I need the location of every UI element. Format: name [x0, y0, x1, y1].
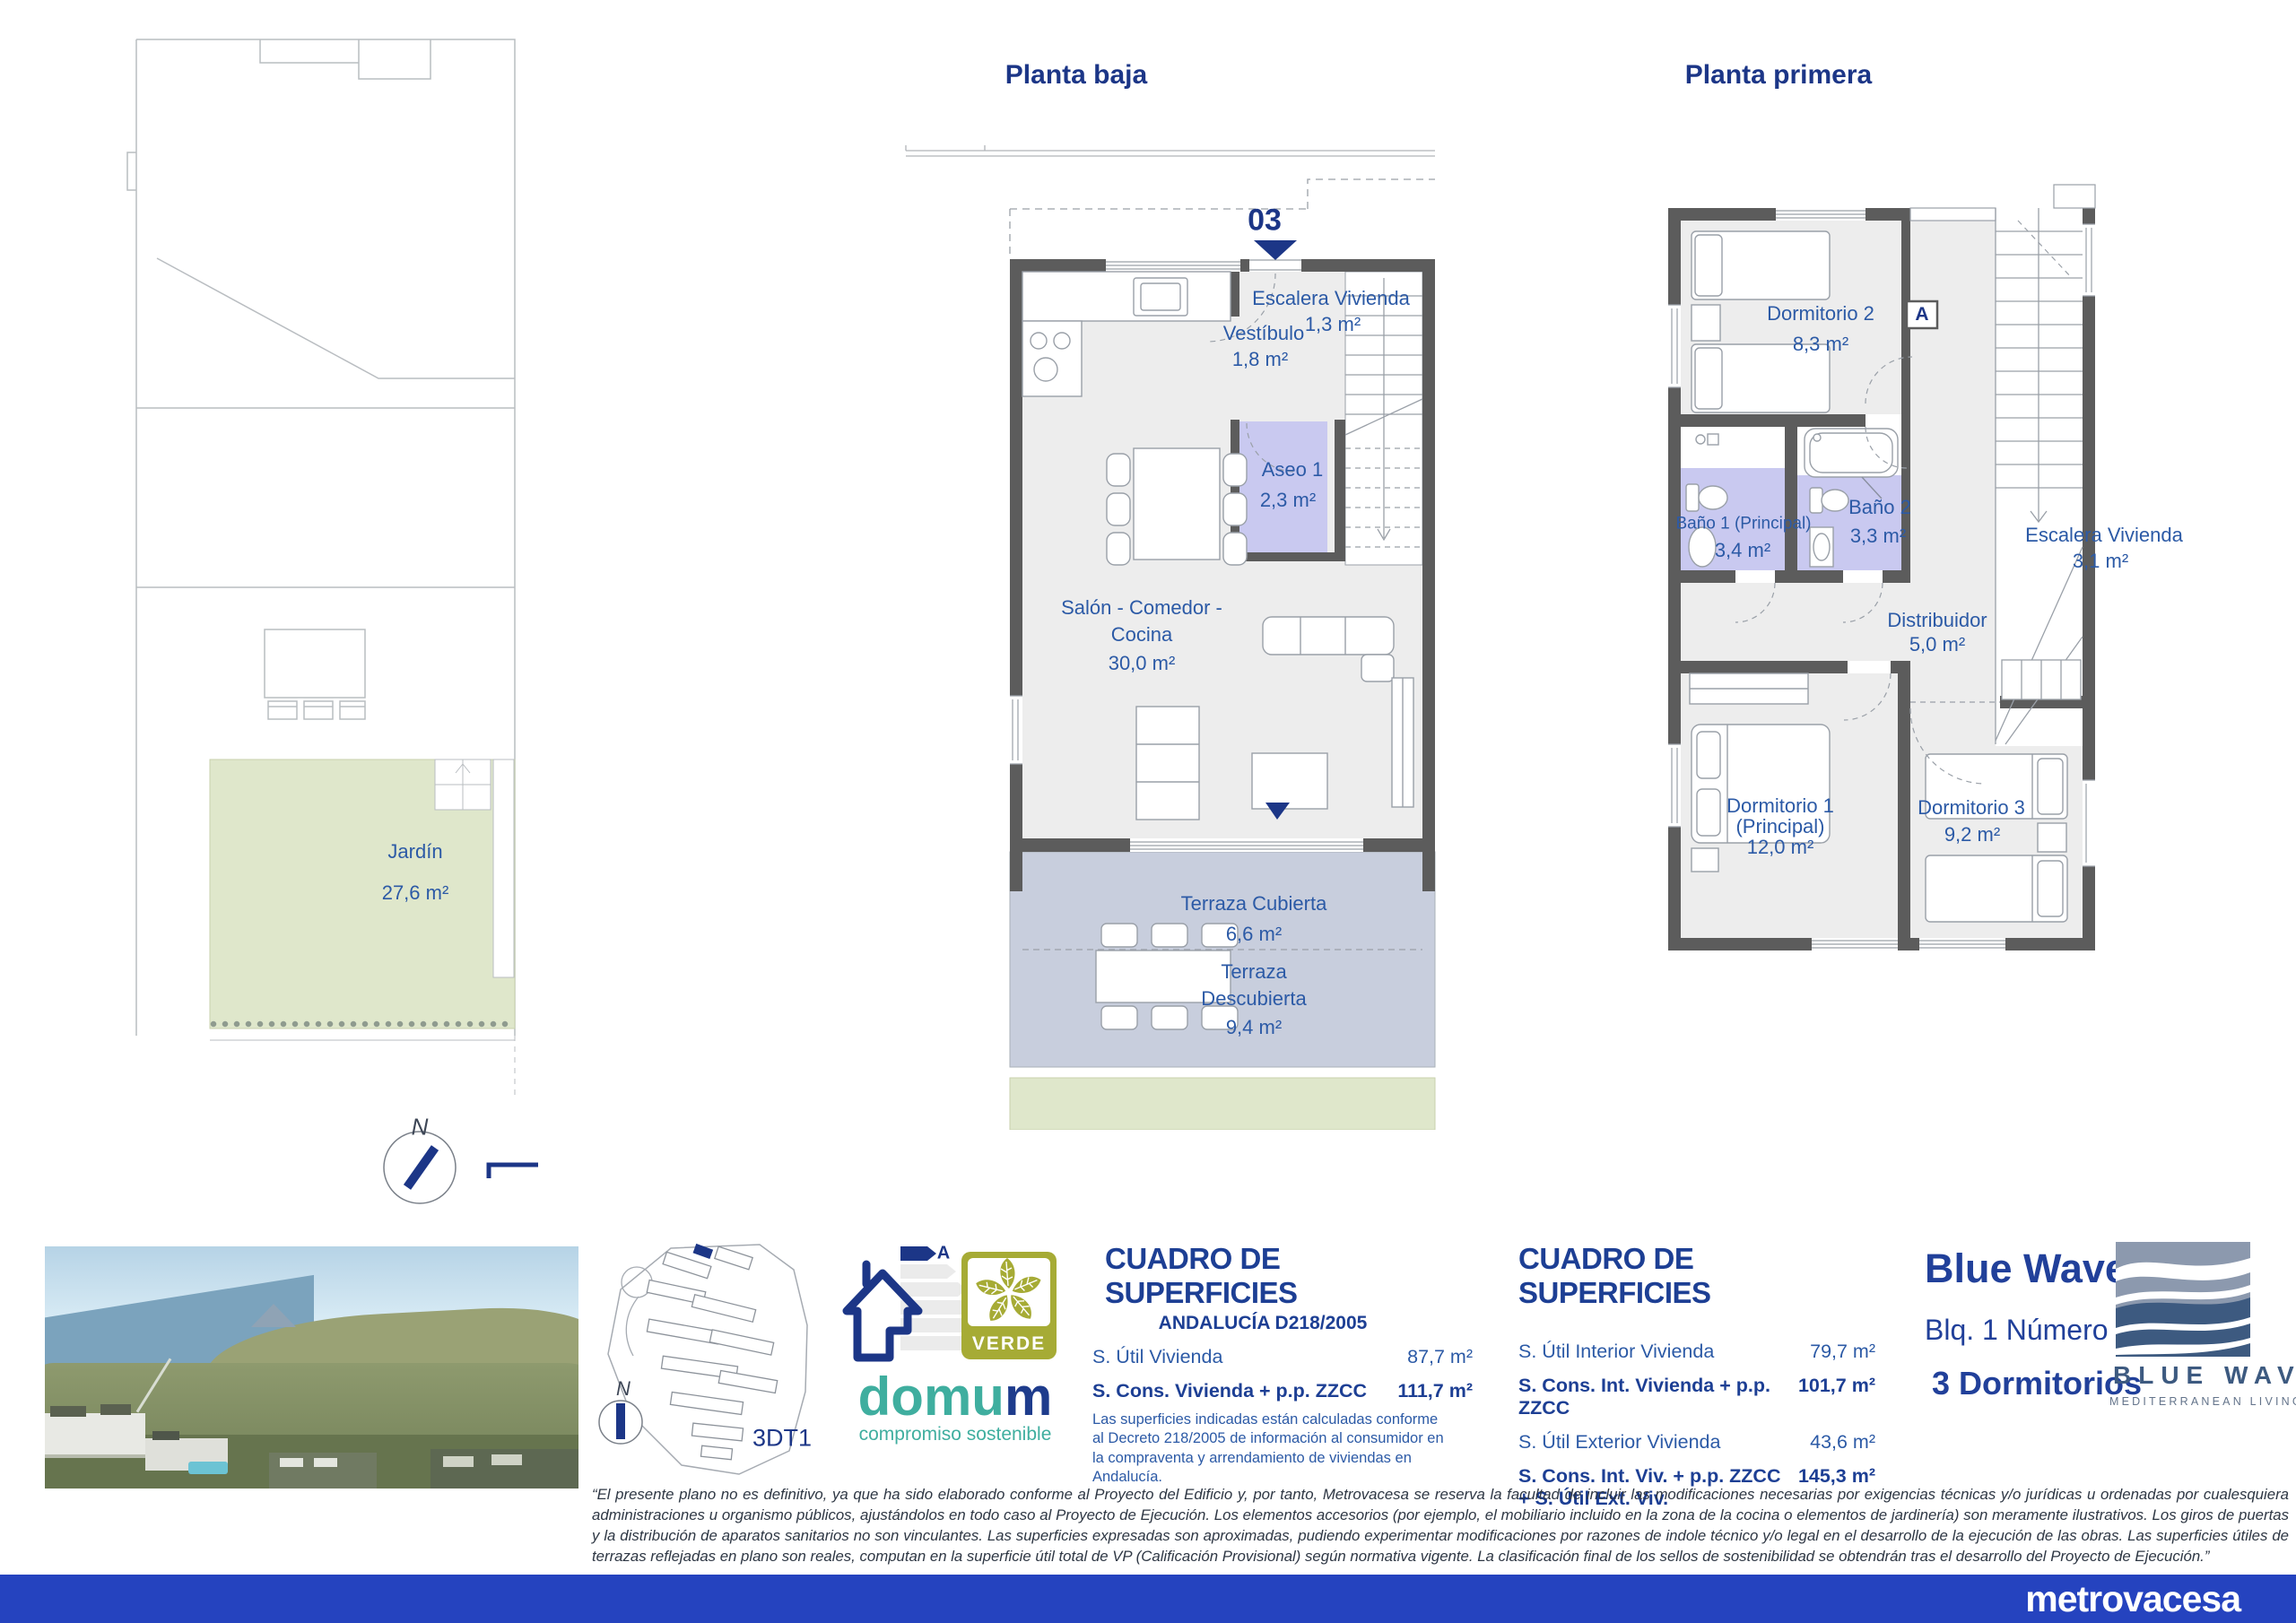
table2-title: CUADRO DE SUPERFICIES [1518, 1242, 1875, 1310]
table1-subtitle: ANDALUCÍA D218/2005 [1092, 1313, 1433, 1334]
row-label: S. Cons. Vivienda + p.p. ZZCC [1092, 1380, 1367, 1402]
row-value: 111,7 m² [1397, 1380, 1473, 1402]
row-label: S. Útil Vivienda [1092, 1346, 1222, 1368]
bano1-label: Baño 1 (Principal) [1675, 516, 1811, 533]
map-north-label: N [616, 1377, 631, 1401]
verde-leaf-icon [968, 1258, 1050, 1326]
dormitorio2-label: Dormitorio 2 [1767, 304, 1874, 324]
garden-label: Jardín [387, 842, 442, 862]
dormitorio3-label: Dormitorio 3 [1918, 798, 2025, 818]
domum-text-navy: m [1004, 1367, 1052, 1427]
garden-strip [1010, 1078, 1435, 1130]
dormitorio3-area: 9,2 m² [1944, 825, 2000, 845]
row-value: 79,7 m² [1810, 1341, 1875, 1363]
dormitorio1-area: 12,0 m² [1747, 838, 1814, 857]
north-label: N [412, 1114, 429, 1141]
terraza-descubierta-label-1: Terraza [1221, 962, 1286, 982]
terraza-cubierta-area: 6,6 m² [1226, 924, 1282, 944]
dormitorio1-label-2: (Principal) [1735, 817, 1824, 837]
bano2-area: 3,3 m² [1850, 526, 1906, 546]
table1-title: CUADRO DE SUPERFICIES [1105, 1242, 1473, 1310]
dormitorio2-area: 8,3 m² [1793, 334, 1848, 354]
reference-lines [906, 145, 1435, 156]
verde-logo: VERDE [961, 1252, 1057, 1359]
escalera-gf-area: 1,3 m² [1305, 315, 1361, 334]
garden-area: 27,6 m² [382, 883, 449, 903]
energy-rating: A [937, 1244, 950, 1264]
aseo-label: Aseo 1 [1262, 460, 1324, 480]
blue-wave-logo-icon [2115, 1242, 2251, 1357]
surface-table-general: CUADRO DE SUPERFICIES S. Útil Interior V… [1518, 1242, 1875, 1510]
escalera-ff-label: Escalera Vivienda [2025, 525, 2183, 545]
salon-label-1: Salón - Comedor - [1061, 598, 1222, 618]
closet [2002, 660, 2081, 699]
location-map [585, 1239, 827, 1490]
row-value: 43,6 m² [1810, 1431, 1875, 1454]
first-floor-plan [1650, 170, 2224, 977]
salon-area: 30,0 m² [1109, 654, 1176, 673]
aerial-photo [45, 1246, 578, 1488]
plan-code: 3DT1 [752, 1425, 812, 1453]
section-marker: A [1915, 304, 1928, 325]
escalera-ff-area: 3,1 m² [2073, 551, 2128, 571]
table-row: S. Útil Interior Vivienda 79,7 m² [1518, 1341, 1875, 1363]
domum-logo: domum [839, 1370, 1072, 1424]
outdoor-table [1096, 924, 1238, 1029]
table-row: S. Cons. Vivienda + p.p. ZZCC 111,7 m² [1092, 1380, 1473, 1402]
metrovacesa-logo: metrovacesa [2025, 1578, 2240, 1620]
blue-wave-logo-title: BLUE WAVE [2113, 1361, 2253, 1390]
distribuidor-label: Distribuidor [1887, 611, 1987, 630]
table-row: S. Útil Vivienda 87,7 m² [1092, 1346, 1473, 1368]
table1-note: Las superficies indicadas están calculad… [1092, 1410, 1451, 1488]
aseo-area: 2,3 m² [1260, 490, 1316, 510]
row-value: 101,7 m² [1798, 1375, 1875, 1397]
table-row: S. Útil Exterior Vivienda 43,6 m² [1518, 1431, 1875, 1454]
surface-table-d218: CUADRO DE SUPERFICIES ANDALUCÍA D218/200… [1092, 1242, 1473, 1488]
blue-wave-logo-subtitle: MEDITERRANEAN LIVING [2109, 1395, 2257, 1408]
vestibulo-area: 1,8 m² [1232, 350, 1288, 369]
unit-number: 03 [1248, 204, 1282, 239]
neighbor-terrace-furniture [265, 629, 365, 719]
table-row: S. Cons. Int. Vivienda + p.p. ZZCC 101,7… [1518, 1375, 1875, 1419]
terraza-descubierta-area: 9,4 m² [1226, 1018, 1282, 1037]
bano1-area: 3,4 m² [1715, 541, 1770, 560]
domum-tagline: compromiso sostenible [839, 1424, 1072, 1445]
salon-label-2: Cocina [1111, 625, 1172, 645]
terraza-cubierta-label: Terraza Cubierta [1181, 894, 1327, 914]
terraza-descubierta-label-2: Descubierta [1201, 989, 1306, 1009]
dormitorio1-label-1: Dormitorio 1 [1726, 796, 1834, 816]
entrance-marker-icon [1254, 240, 1297, 260]
garden-area [210, 759, 515, 1040]
verde-label: VERDE [961, 1333, 1057, 1355]
boundary-dashed [1010, 179, 1435, 259]
domum-text-teal: domu [858, 1367, 1004, 1427]
row-value: 87,7 m² [1407, 1346, 1473, 1368]
row-label: S. Útil Exterior Vivienda [1518, 1431, 1720, 1454]
footer-bar: metrovacesa [0, 1575, 2296, 1623]
ground-floor-title: Planta baja [1005, 60, 1147, 91]
legal-disclaimer: “El presente plano no es definitivo, ya … [592, 1485, 2289, 1567]
row-label: S. Útil Interior Vivienda [1518, 1341, 1714, 1363]
north-compass-icon [384, 1132, 456, 1203]
rating-arrow-icon [900, 1246, 936, 1261]
row-label: S. Cons. Int. Vivienda + p.p. ZZCC [1518, 1375, 1786, 1419]
escalera-gf-label: Escalera Vivienda [1252, 289, 1410, 308]
bano2-label: Baño 2 [1848, 498, 1911, 517]
dining-table [1107, 448, 1247, 565]
map-north-compass-icon [599, 1401, 642, 1444]
highlighted-unit [693, 1244, 714, 1259]
distribuidor-area: 5,0 m² [1909, 635, 1965, 655]
scale-bar [489, 1165, 538, 1178]
first-floor-title: Planta primera [1685, 60, 1872, 91]
plan-sheet: Jardín 27,6 m² N Planta baja [0, 0, 2296, 1623]
vestibulo-label: Vestíbulo [1223, 324, 1305, 343]
site-garden-plan [126, 27, 538, 1237]
